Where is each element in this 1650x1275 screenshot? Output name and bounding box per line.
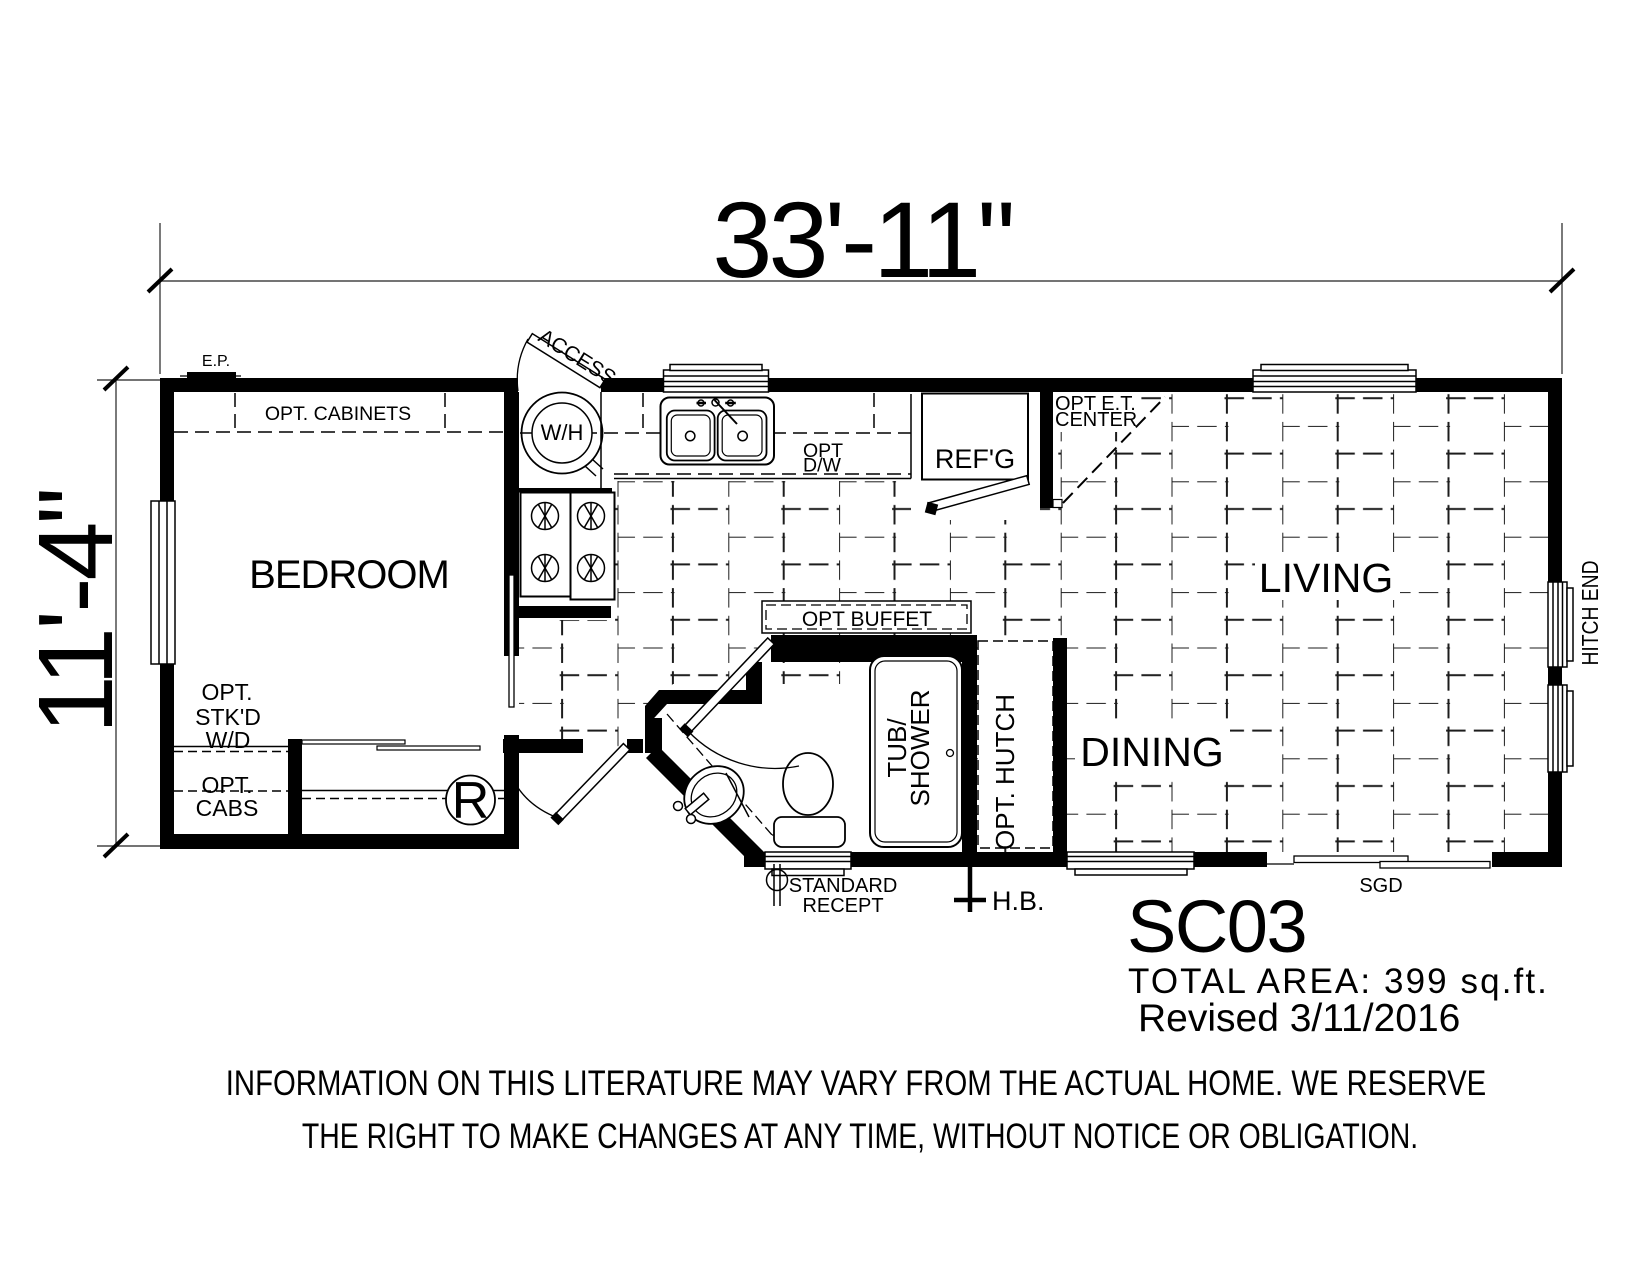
svg-text:11'-4": 11'-4" [17, 490, 135, 734]
svg-text:W/D: W/D [206, 727, 251, 753]
svg-text:SC03: SC03 [1127, 885, 1306, 968]
svg-text:LIVING: LIVING [1259, 555, 1393, 601]
svg-text:HITCH END: HITCH END [1579, 560, 1604, 665]
svg-text:D/W: D/W [803, 455, 842, 477]
svg-text:OPT. HUTCH: OPT. HUTCH [990, 694, 1020, 850]
svg-text:SHOWER: SHOWER [905, 690, 935, 807]
svg-text:OPT BUFFET: OPT BUFFET [802, 608, 932, 631]
svg-text:E.P.: E.P. [202, 353, 230, 370]
svg-text:W/H: W/H [541, 420, 584, 445]
svg-text:BEDROOM: BEDROOM [249, 553, 449, 597]
svg-text:CABS: CABS [196, 795, 259, 821]
svg-text:R: R [452, 772, 490, 830]
svg-text:THE RIGHT TO MAKE CHANGES AT A: THE RIGHT TO MAKE CHANGES AT ANY TIME, W… [302, 1116, 1418, 1156]
svg-text:CENTER: CENTER [1055, 409, 1137, 431]
svg-text:Revised 3/11/2016: Revised 3/11/2016 [1138, 997, 1460, 1040]
svg-text:DINING: DINING [1080, 729, 1224, 775]
svg-text:REF'G: REF'G [935, 444, 1015, 474]
svg-text:OPT.: OPT. [201, 679, 252, 705]
svg-text:RECEPT: RECEPT [802, 895, 883, 917]
svg-text:SGD: SGD [1359, 875, 1402, 897]
svg-text:OPT. CABINETS: OPT. CABINETS [265, 403, 411, 425]
svg-text:TOTAL AREA: 399 sq.ft.: TOTAL AREA: 399 sq.ft. [1128, 962, 1549, 1001]
svg-text:H.B.: H.B. [992, 886, 1045, 916]
svg-text:INFORMATION ON THIS LITERATURE: INFORMATION ON THIS LITERATURE MAY VARY … [226, 1064, 1486, 1103]
svg-text:STANDARD: STANDARD [789, 875, 898, 897]
svg-text:33'-11": 33'-11" [712, 179, 1011, 300]
